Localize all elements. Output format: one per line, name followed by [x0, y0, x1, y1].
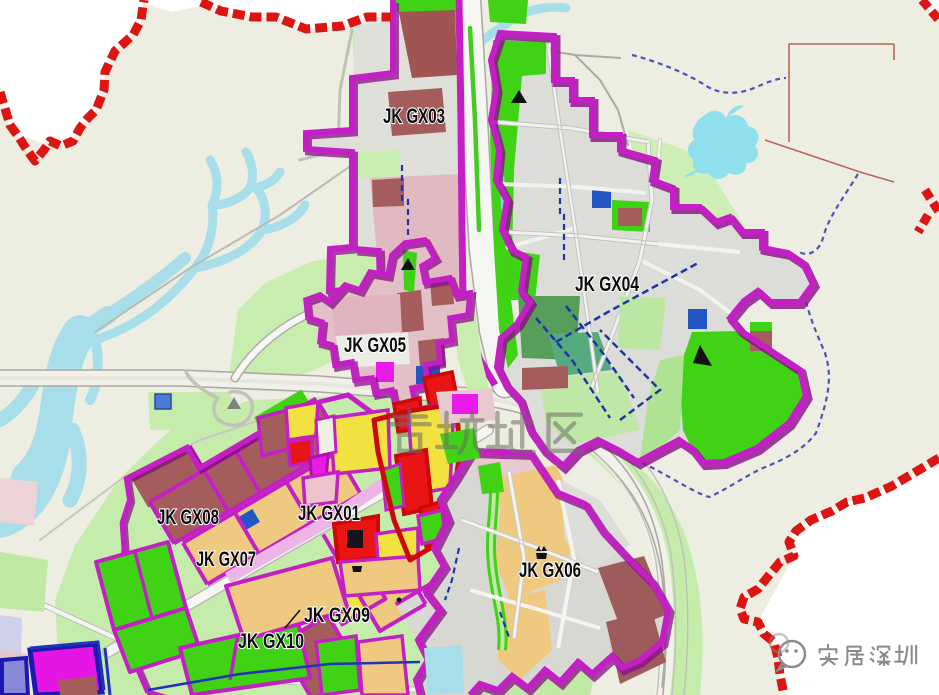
- svg-text:JK GX04: JK GX04: [575, 273, 639, 296]
- svg-text:JK GX05: JK GX05: [344, 334, 406, 357]
- svg-text:JK GX10: JK GX10: [238, 630, 304, 653]
- svg-text:JK GX06: JK GX06: [519, 559, 581, 582]
- svg-text:JK GX01: JK GX01: [298, 502, 360, 525]
- svg-text:JK GX07: JK GX07: [196, 548, 256, 571]
- svg-text:JK GX09: JK GX09: [304, 604, 370, 627]
- svg-text:JK GX08: JK GX08: [157, 506, 219, 529]
- svg-text:JK GX03: JK GX03: [383, 105, 445, 128]
